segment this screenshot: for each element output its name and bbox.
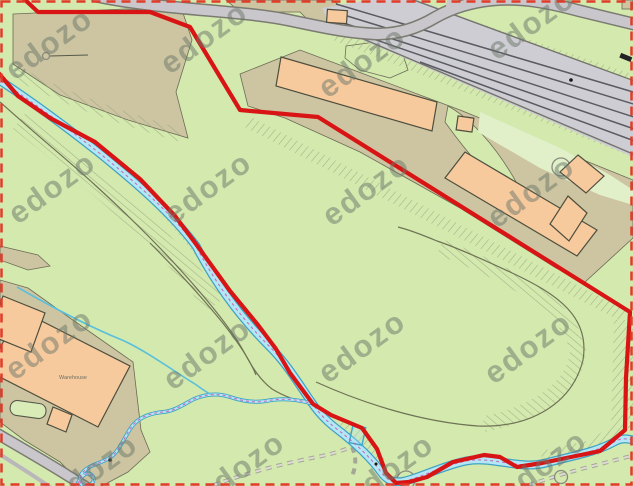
map-canvas[interactable]: Warehouse edozoedozoedozoedozoedozoedozo… [0,0,633,486]
map-svg: Warehouse edozoedozoedozoedozoedozoedozo… [0,0,633,486]
small-building [327,9,348,23]
small-square-building [456,116,474,132]
warehouse-label: Warehouse [59,375,87,381]
